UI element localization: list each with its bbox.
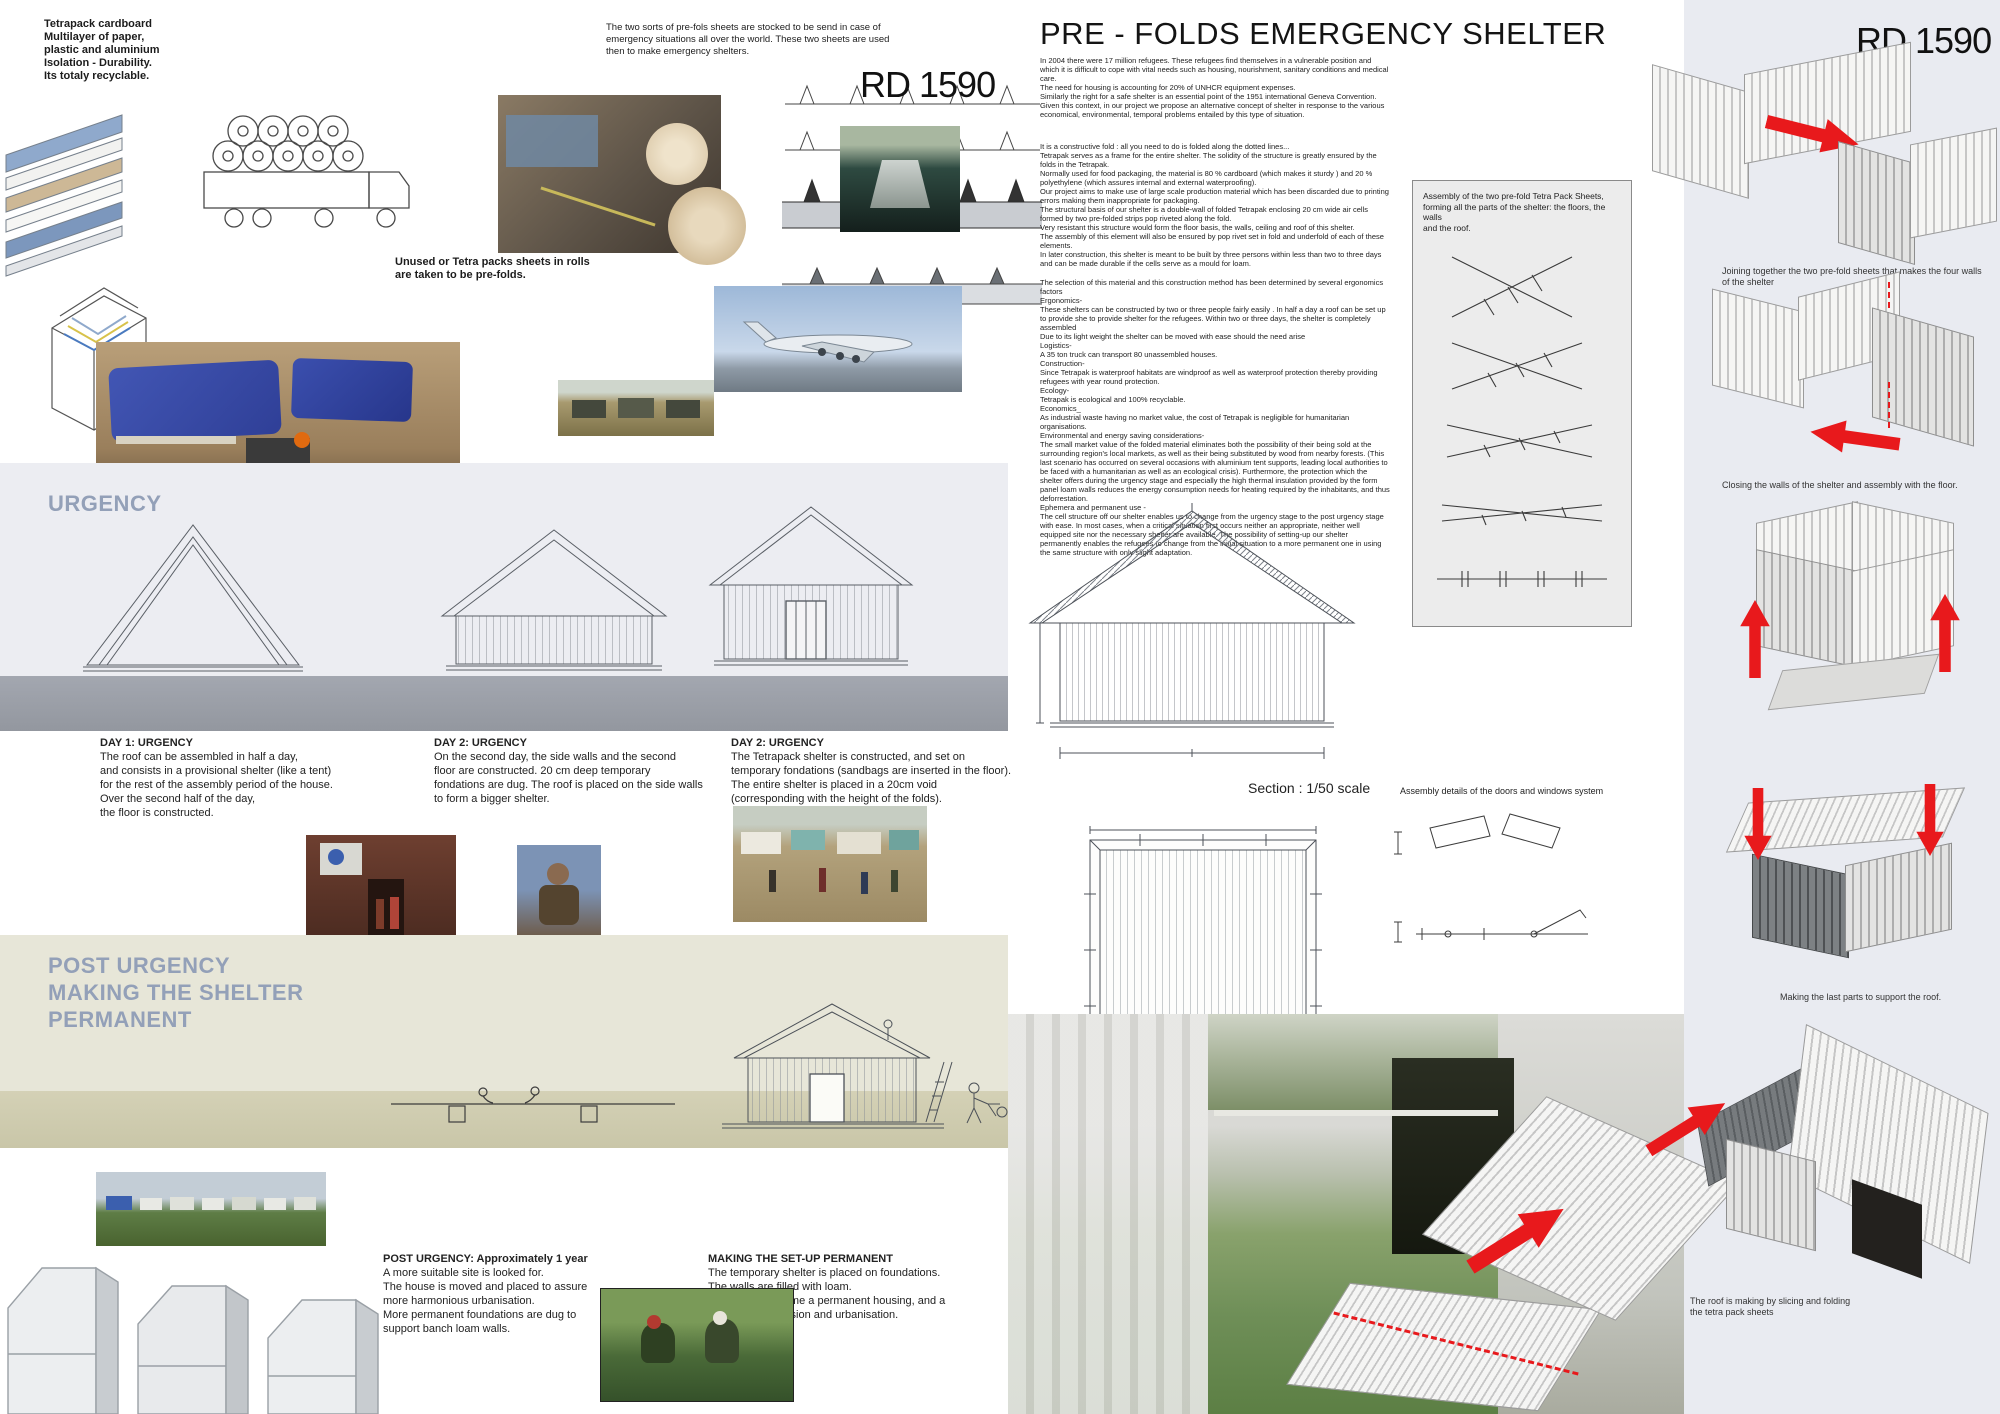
red-arrow-down-right bbox=[1914, 784, 1946, 856]
photo-unhcr-building bbox=[306, 835, 456, 945]
details-label: Assembly details of the doors and window… bbox=[1400, 786, 1603, 796]
day-step-2-title: DAY 2: URGENCY bbox=[434, 736, 744, 750]
day-step-1-title: DAY 1: URGENCY bbox=[100, 736, 420, 750]
assembly-steps-diagram bbox=[1422, 239, 1622, 619]
red-dashed-guide-top bbox=[1888, 282, 1890, 308]
day-step-3: DAY 2: URGENCY The Tetrapack shelter is … bbox=[731, 736, 1051, 806]
day-step-3-title: DAY 2: URGENCY bbox=[731, 736, 1051, 750]
main-title: PRE - FOLDS EMERGENCY SHELTER bbox=[1040, 16, 1606, 52]
step-caption-2: Closing the walls of the shelter and ass… bbox=[1722, 480, 1982, 491]
body-paragraph-1: In 2004 there were 17 million refugees. … bbox=[1040, 56, 1390, 119]
day-step-2-text: On the second day, the side walls and th… bbox=[434, 751, 703, 805]
assembly-panel: Assembly of the two pre-fold Tetra Pack … bbox=[1412, 180, 1632, 627]
body-paragraph-2: It is a constructive fold : all you need… bbox=[1040, 142, 1390, 268]
permanent-house-section-drawing bbox=[682, 996, 1017, 1144]
rolls-caption: Unused or Tetra packs sheets in rolls ar… bbox=[395, 256, 590, 282]
urgency-day2-drawing bbox=[430, 524, 678, 680]
post-step-1-title: POST URGENCY: Approximately 1 year bbox=[383, 1252, 683, 1266]
step-caption-3: Making the last parts to support the roo… bbox=[1780, 992, 1990, 1003]
render1-corner2-left-face bbox=[1838, 141, 1915, 265]
urgency-day2b-drawing bbox=[700, 501, 922, 681]
day-step-2: DAY 2: URGENCY On the second day, the si… bbox=[434, 736, 744, 806]
wall-panel-sections-drawing bbox=[0, 1246, 390, 1414]
urgency-day1-drawing bbox=[77, 503, 309, 681]
photo-camp-scene bbox=[733, 806, 927, 922]
red-arrow-up-left bbox=[1738, 600, 1772, 678]
render1-corner2-right-face bbox=[1910, 128, 1997, 239]
post-urgency-heading: POST URGENCY MAKING THE SHELTER PERMANEN… bbox=[48, 952, 303, 1033]
foundation-drawing bbox=[383, 1078, 683, 1140]
assembly-note: Assembly of the two pre-fold Tetra Pack … bbox=[1413, 181, 1631, 233]
photo-farming bbox=[600, 1288, 794, 1402]
photo-man-portrait bbox=[517, 845, 601, 945]
day-step-1-text: The roof can be assembled in half a day,… bbox=[100, 751, 333, 819]
competition-board: Tetrapack cardboard Multilayer of paper,… bbox=[0, 0, 2000, 1414]
day-step-1: DAY 1: URGENCY The roof can be assembled… bbox=[100, 736, 420, 820]
post-step-2-title: MAKING THE SET-UP PERMANENT bbox=[708, 1252, 1038, 1266]
photo-tent-camp-panorama bbox=[96, 1172, 326, 1246]
board-id-left: RD 1590 bbox=[860, 64, 995, 106]
day-step-3-text: The Tetrapack shelter is constructed, an… bbox=[731, 751, 1011, 805]
photo-factory-rolls bbox=[498, 95, 721, 253]
intro-note: The two sorts of pre-fols sheets are sto… bbox=[606, 22, 936, 58]
section-label: Section : 1/50 scale bbox=[1248, 780, 1370, 796]
red-dashed-guide-bottom bbox=[1888, 382, 1890, 428]
post-step-1-text: A more suitable site is looked for. The … bbox=[383, 1267, 587, 1335]
photo-convoy bbox=[558, 380, 714, 436]
red-arrow-down-left bbox=[1742, 788, 1774, 860]
door-window-details-drawing bbox=[1388, 806, 1608, 976]
photo-cargo-loading bbox=[840, 126, 960, 232]
step-caption-4: The roof is making by slicing and foldin… bbox=[1690, 1296, 1930, 1318]
urgency-ground-strip bbox=[0, 676, 1008, 731]
truck-with-rolls-drawing bbox=[196, 98, 426, 243]
photo-airplane bbox=[714, 286, 962, 392]
section-elevation-drawing bbox=[1012, 495, 1372, 785]
red-arrow-up-right bbox=[1928, 594, 1962, 672]
